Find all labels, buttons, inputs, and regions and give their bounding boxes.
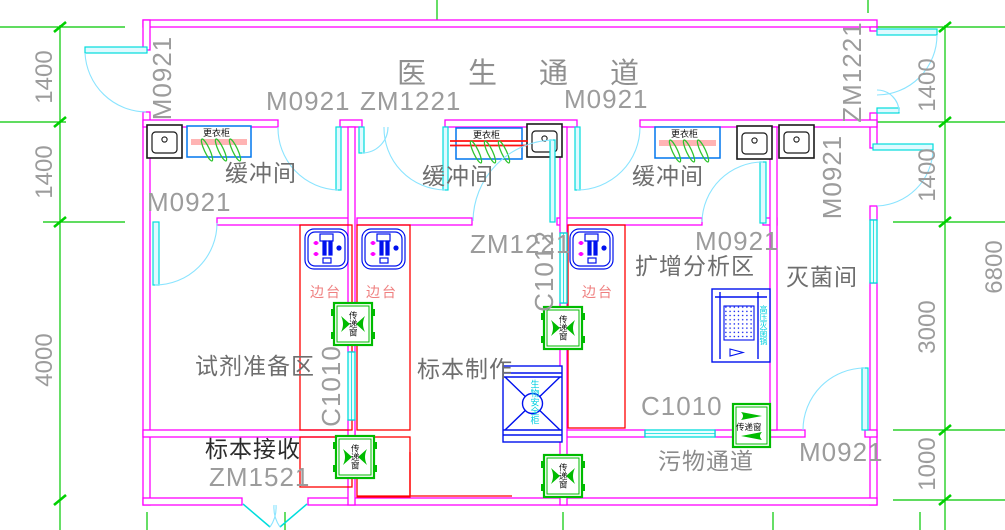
floorplan-canvas xyxy=(0,0,1005,530)
dimension-lines xyxy=(0,0,1005,530)
door-arcs xyxy=(85,35,937,527)
floorplan-page: 医生通道 污物通道 M0921 ZM1221 M0921 M0921 ZM122… xyxy=(0,0,1005,530)
autoclave xyxy=(712,289,770,362)
door-leaves xyxy=(85,29,937,527)
biosafety-cabinet xyxy=(503,366,562,442)
